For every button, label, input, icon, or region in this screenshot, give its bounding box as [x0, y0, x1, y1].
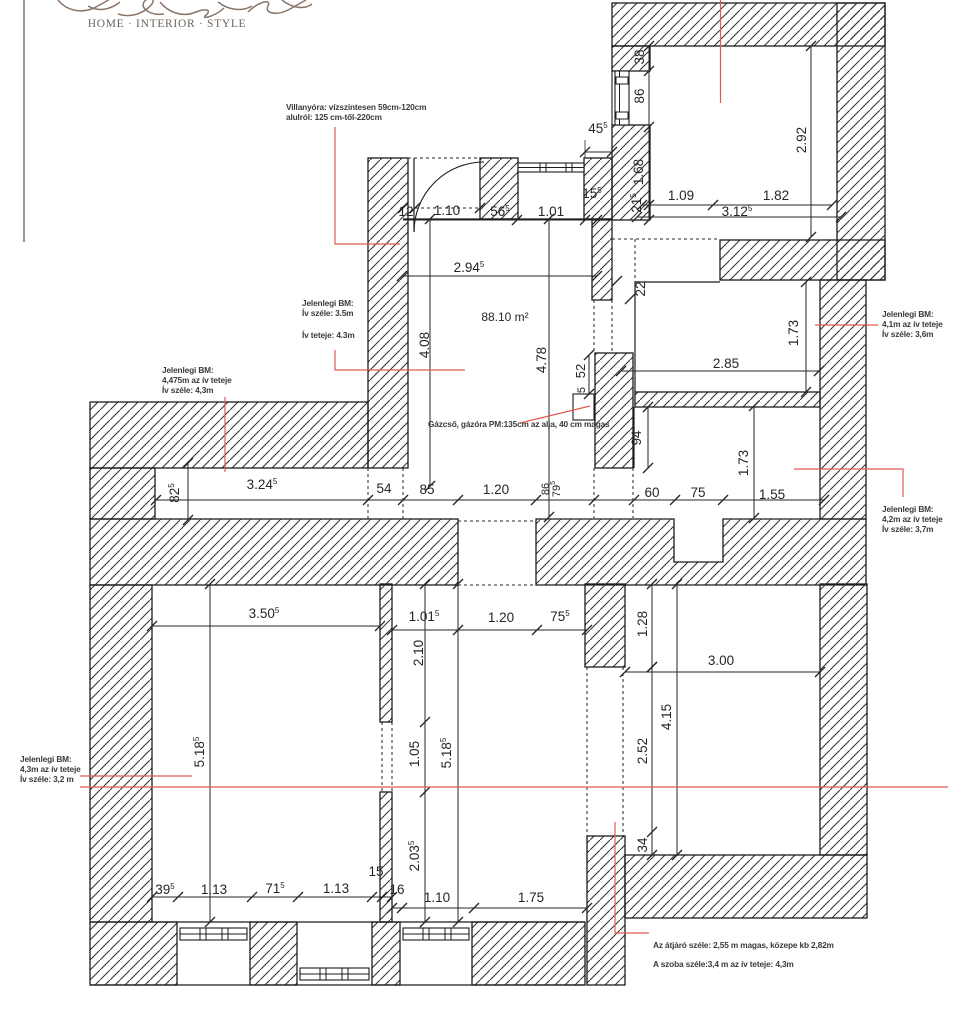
svg-text:4,1m az ív teteje: 4,1m az ív teteje	[882, 319, 943, 329]
svg-text:Ív széle: 3,6m: Ív széle: 3,6m	[882, 329, 933, 339]
svg-text:60: 60	[644, 485, 659, 500]
svg-text:1.05: 1.05	[407, 741, 422, 767]
svg-text:Ív széle: 3.5m: Ív széle: 3.5m	[302, 308, 353, 318]
svg-text:1.13: 1.13	[201, 882, 227, 897]
svg-text:Ív széle: 3,2 m: Ív széle: 3,2 m	[20, 774, 74, 784]
svg-text:52: 52	[573, 364, 588, 378]
svg-text:1.10: 1.10	[424, 890, 450, 905]
svg-text:4.15: 4.15	[659, 704, 674, 730]
svg-text:16: 16	[389, 882, 404, 897]
svg-text:Ív teteje: 4.3m: Ív teteje: 4.3m	[302, 330, 355, 340]
svg-text:2.10: 2.10	[411, 640, 426, 666]
svg-text:Villanyóra: vízszintesen 59cm-: Villanyóra: vízszintesen 59cm-120cm	[286, 102, 426, 112]
svg-text:1.28: 1.28	[635, 611, 650, 637]
svg-text:15: 15	[368, 864, 383, 879]
svg-text:1.13: 1.13	[323, 881, 349, 896]
svg-text:Jelenlegi BM:: Jelenlegi BM:	[20, 754, 72, 764]
svg-text:34: 34	[635, 837, 650, 853]
svg-text:94: 94	[629, 430, 644, 446]
svg-text:4,2m az ív teteje: 4,2m az ív teteje	[882, 514, 943, 524]
svg-text:5: 5	[576, 387, 588, 393]
svg-text:1.68: 1.68	[631, 159, 646, 185]
svg-text:Gázcső, gázóra PM:135cm az alj: Gázcső, gázóra PM:135cm az alja, 40 cm m…	[428, 419, 610, 429]
svg-text:12: 12	[398, 204, 413, 219]
svg-text:1.73: 1.73	[786, 320, 801, 346]
svg-text:1.73: 1.73	[736, 450, 751, 476]
svg-text:88.10 m²: 88.10 m²	[481, 310, 528, 324]
svg-text:Jelenlegi BM:: Jelenlegi BM:	[882, 504, 934, 514]
svg-text:4.08: 4.08	[417, 332, 432, 358]
svg-text:Az átjáró széle: 2,55 m magas,: Az átjáró széle: 2,55 m magas, közepe kb…	[653, 940, 834, 950]
svg-text:1.10: 1.10	[434, 203, 460, 218]
svg-text:54: 54	[376, 481, 392, 496]
svg-text:A szoba széle:3,4 m az ív tete: A szoba széle:3,4 m az ív teteje: 4,3m	[653, 959, 794, 969]
svg-text:Jelenlegi BM:: Jelenlegi BM:	[302, 298, 354, 308]
svg-text:2.52: 2.52	[635, 738, 650, 764]
svg-text:Jelenlegi BM:: Jelenlegi BM:	[162, 365, 214, 375]
svg-text:75: 75	[690, 485, 705, 500]
svg-text:Ív széle: 3,7m: Ív széle: 3,7m	[882, 524, 933, 534]
svg-text:3.00: 3.00	[708, 653, 734, 668]
svg-text:38: 38	[632, 49, 647, 64]
svg-text:1.82: 1.82	[763, 188, 789, 203]
svg-text:86: 86	[632, 88, 647, 103]
svg-text:alulról: 125 cm-től-220cm: alulról: 125 cm-től-220cm	[286, 112, 382, 122]
svg-text:4,475m az ív teteje: 4,475m az ív teteje	[162, 375, 232, 385]
svg-text:HOME · INTERIOR · STYLE: HOME · INTERIOR · STYLE	[88, 18, 247, 30]
svg-text:4,3m az ív teteje: 4,3m az ív teteje	[20, 764, 81, 774]
svg-text:1.20: 1.20	[488, 610, 514, 625]
svg-text:1.09: 1.09	[668, 188, 694, 203]
svg-text:1.55: 1.55	[759, 487, 785, 502]
svg-text:Jelenlegi BM:: Jelenlegi BM:	[882, 309, 934, 319]
svg-text:2.85: 2.85	[713, 356, 739, 371]
svg-text:Ív széle: 4,3m: Ív széle: 4,3m	[162, 385, 213, 395]
svg-text:2.92: 2.92	[794, 127, 809, 153]
svg-text:1.75: 1.75	[518, 890, 544, 905]
svg-text:1.20: 1.20	[483, 482, 509, 497]
svg-text:4.78: 4.78	[534, 347, 549, 373]
svg-text:85: 85	[419, 482, 434, 497]
